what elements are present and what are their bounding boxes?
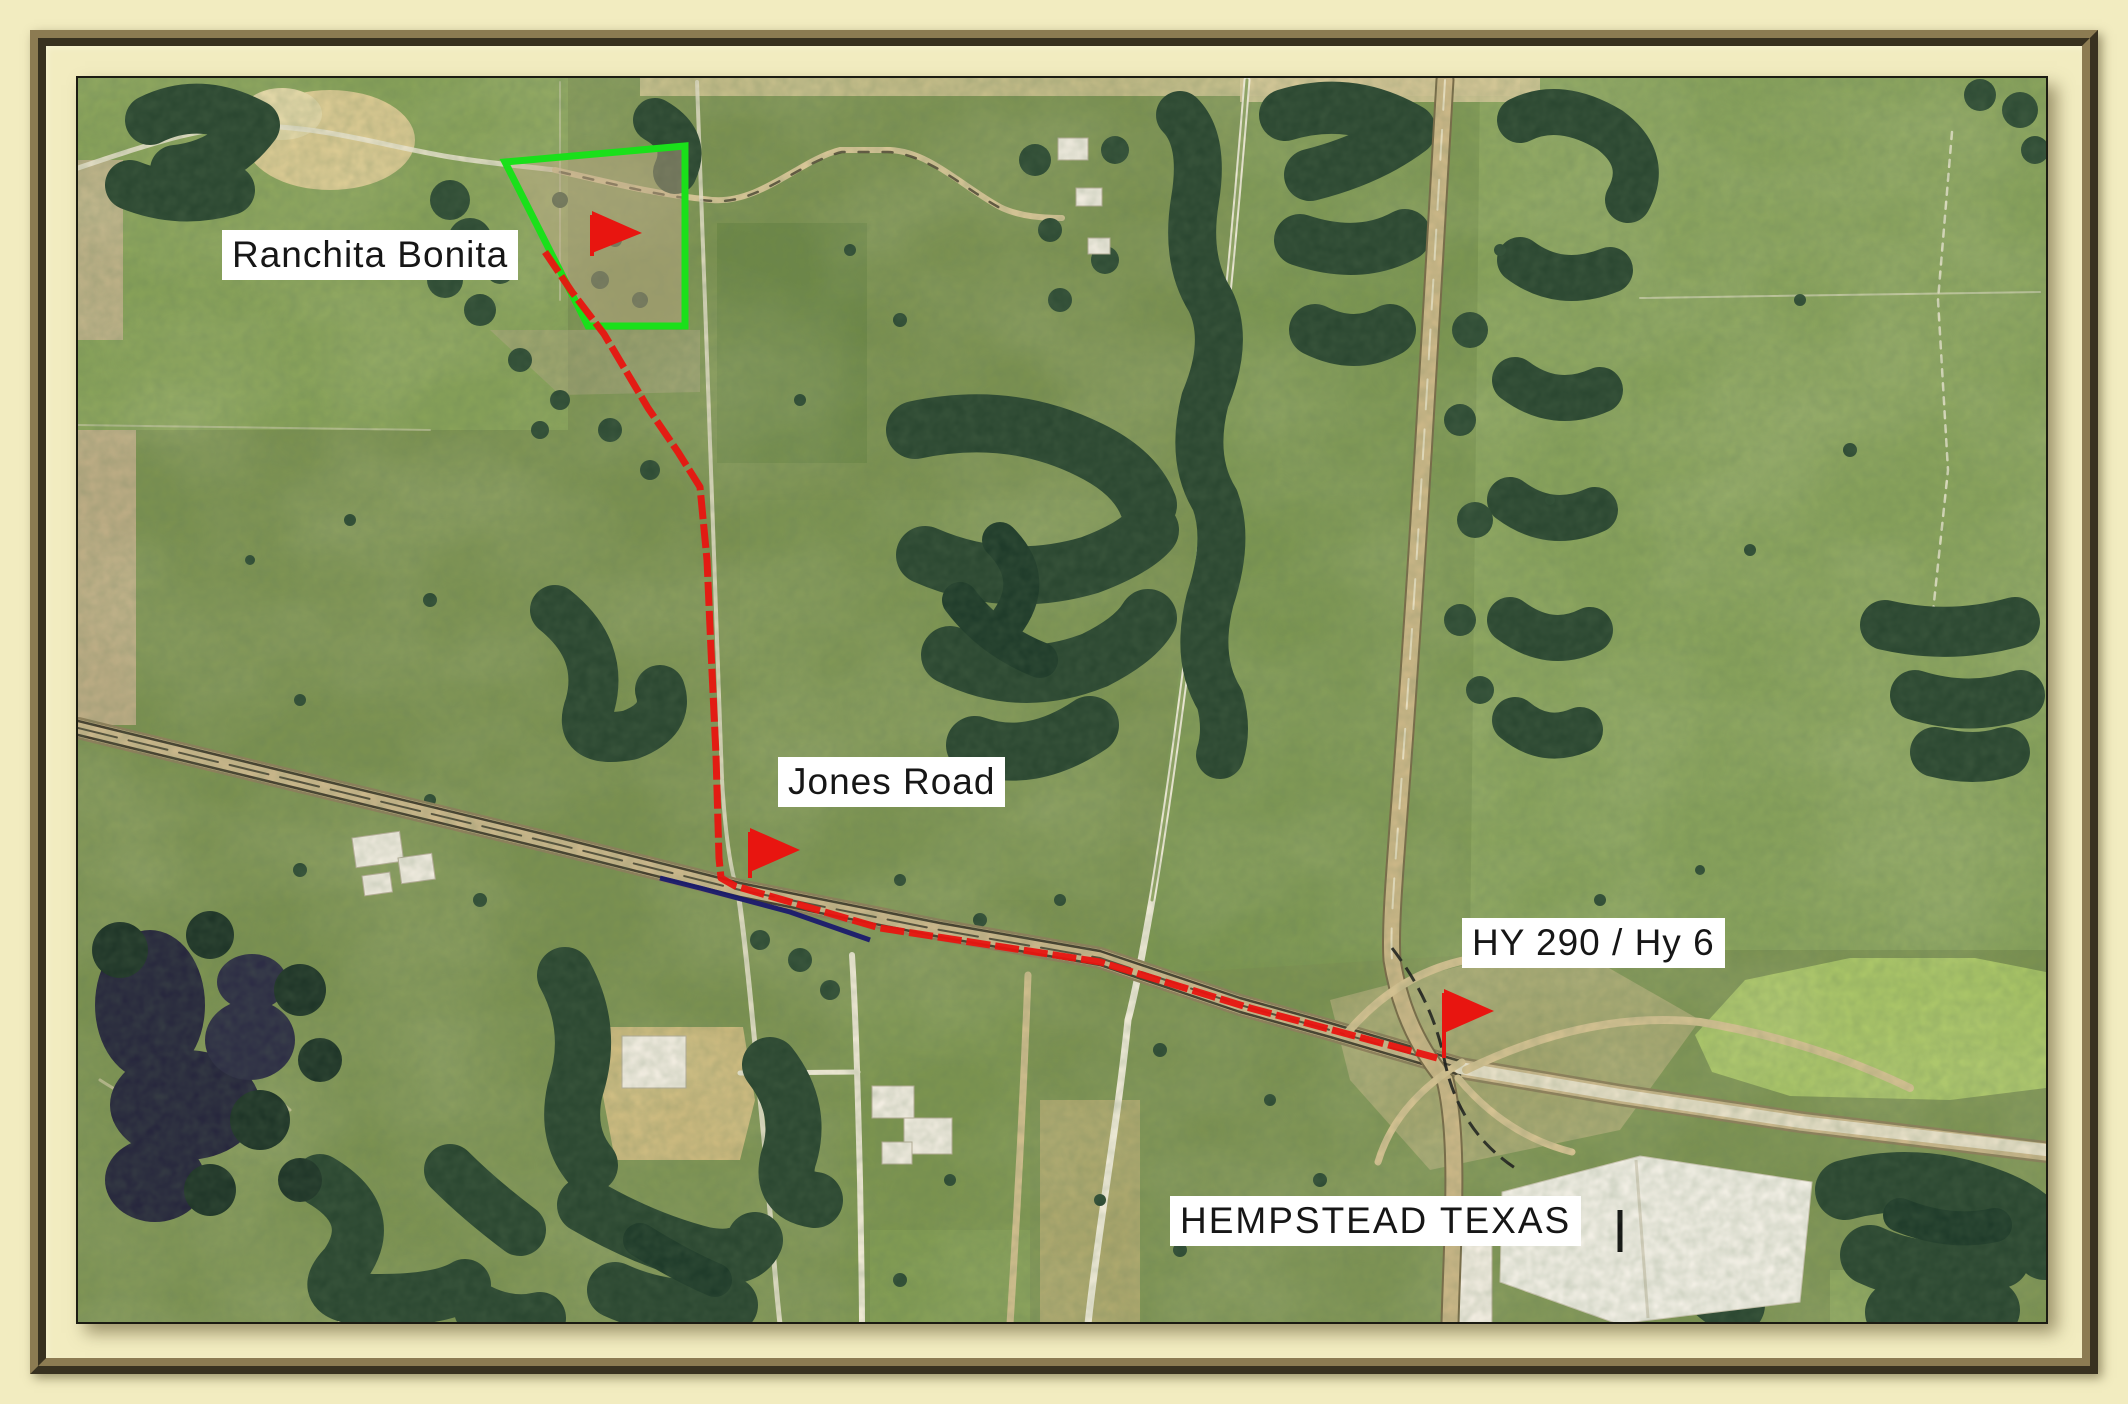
aerial-map: Ranchita Bonita Jones Road HY 290 / Hy 6… — [76, 76, 2048, 1324]
label-city: HEMPSTEAD TEXAS — [1170, 1196, 1581, 1246]
framed-map: Ranchita Bonita Jones Road HY 290 / Hy 6… — [0, 0, 2128, 1404]
label-highway-junction: HY 290 / Hy 6 — [1462, 918, 1725, 968]
label-property: Ranchita Bonita — [222, 230, 518, 280]
label-road-junction: Jones Road — [778, 757, 1005, 807]
